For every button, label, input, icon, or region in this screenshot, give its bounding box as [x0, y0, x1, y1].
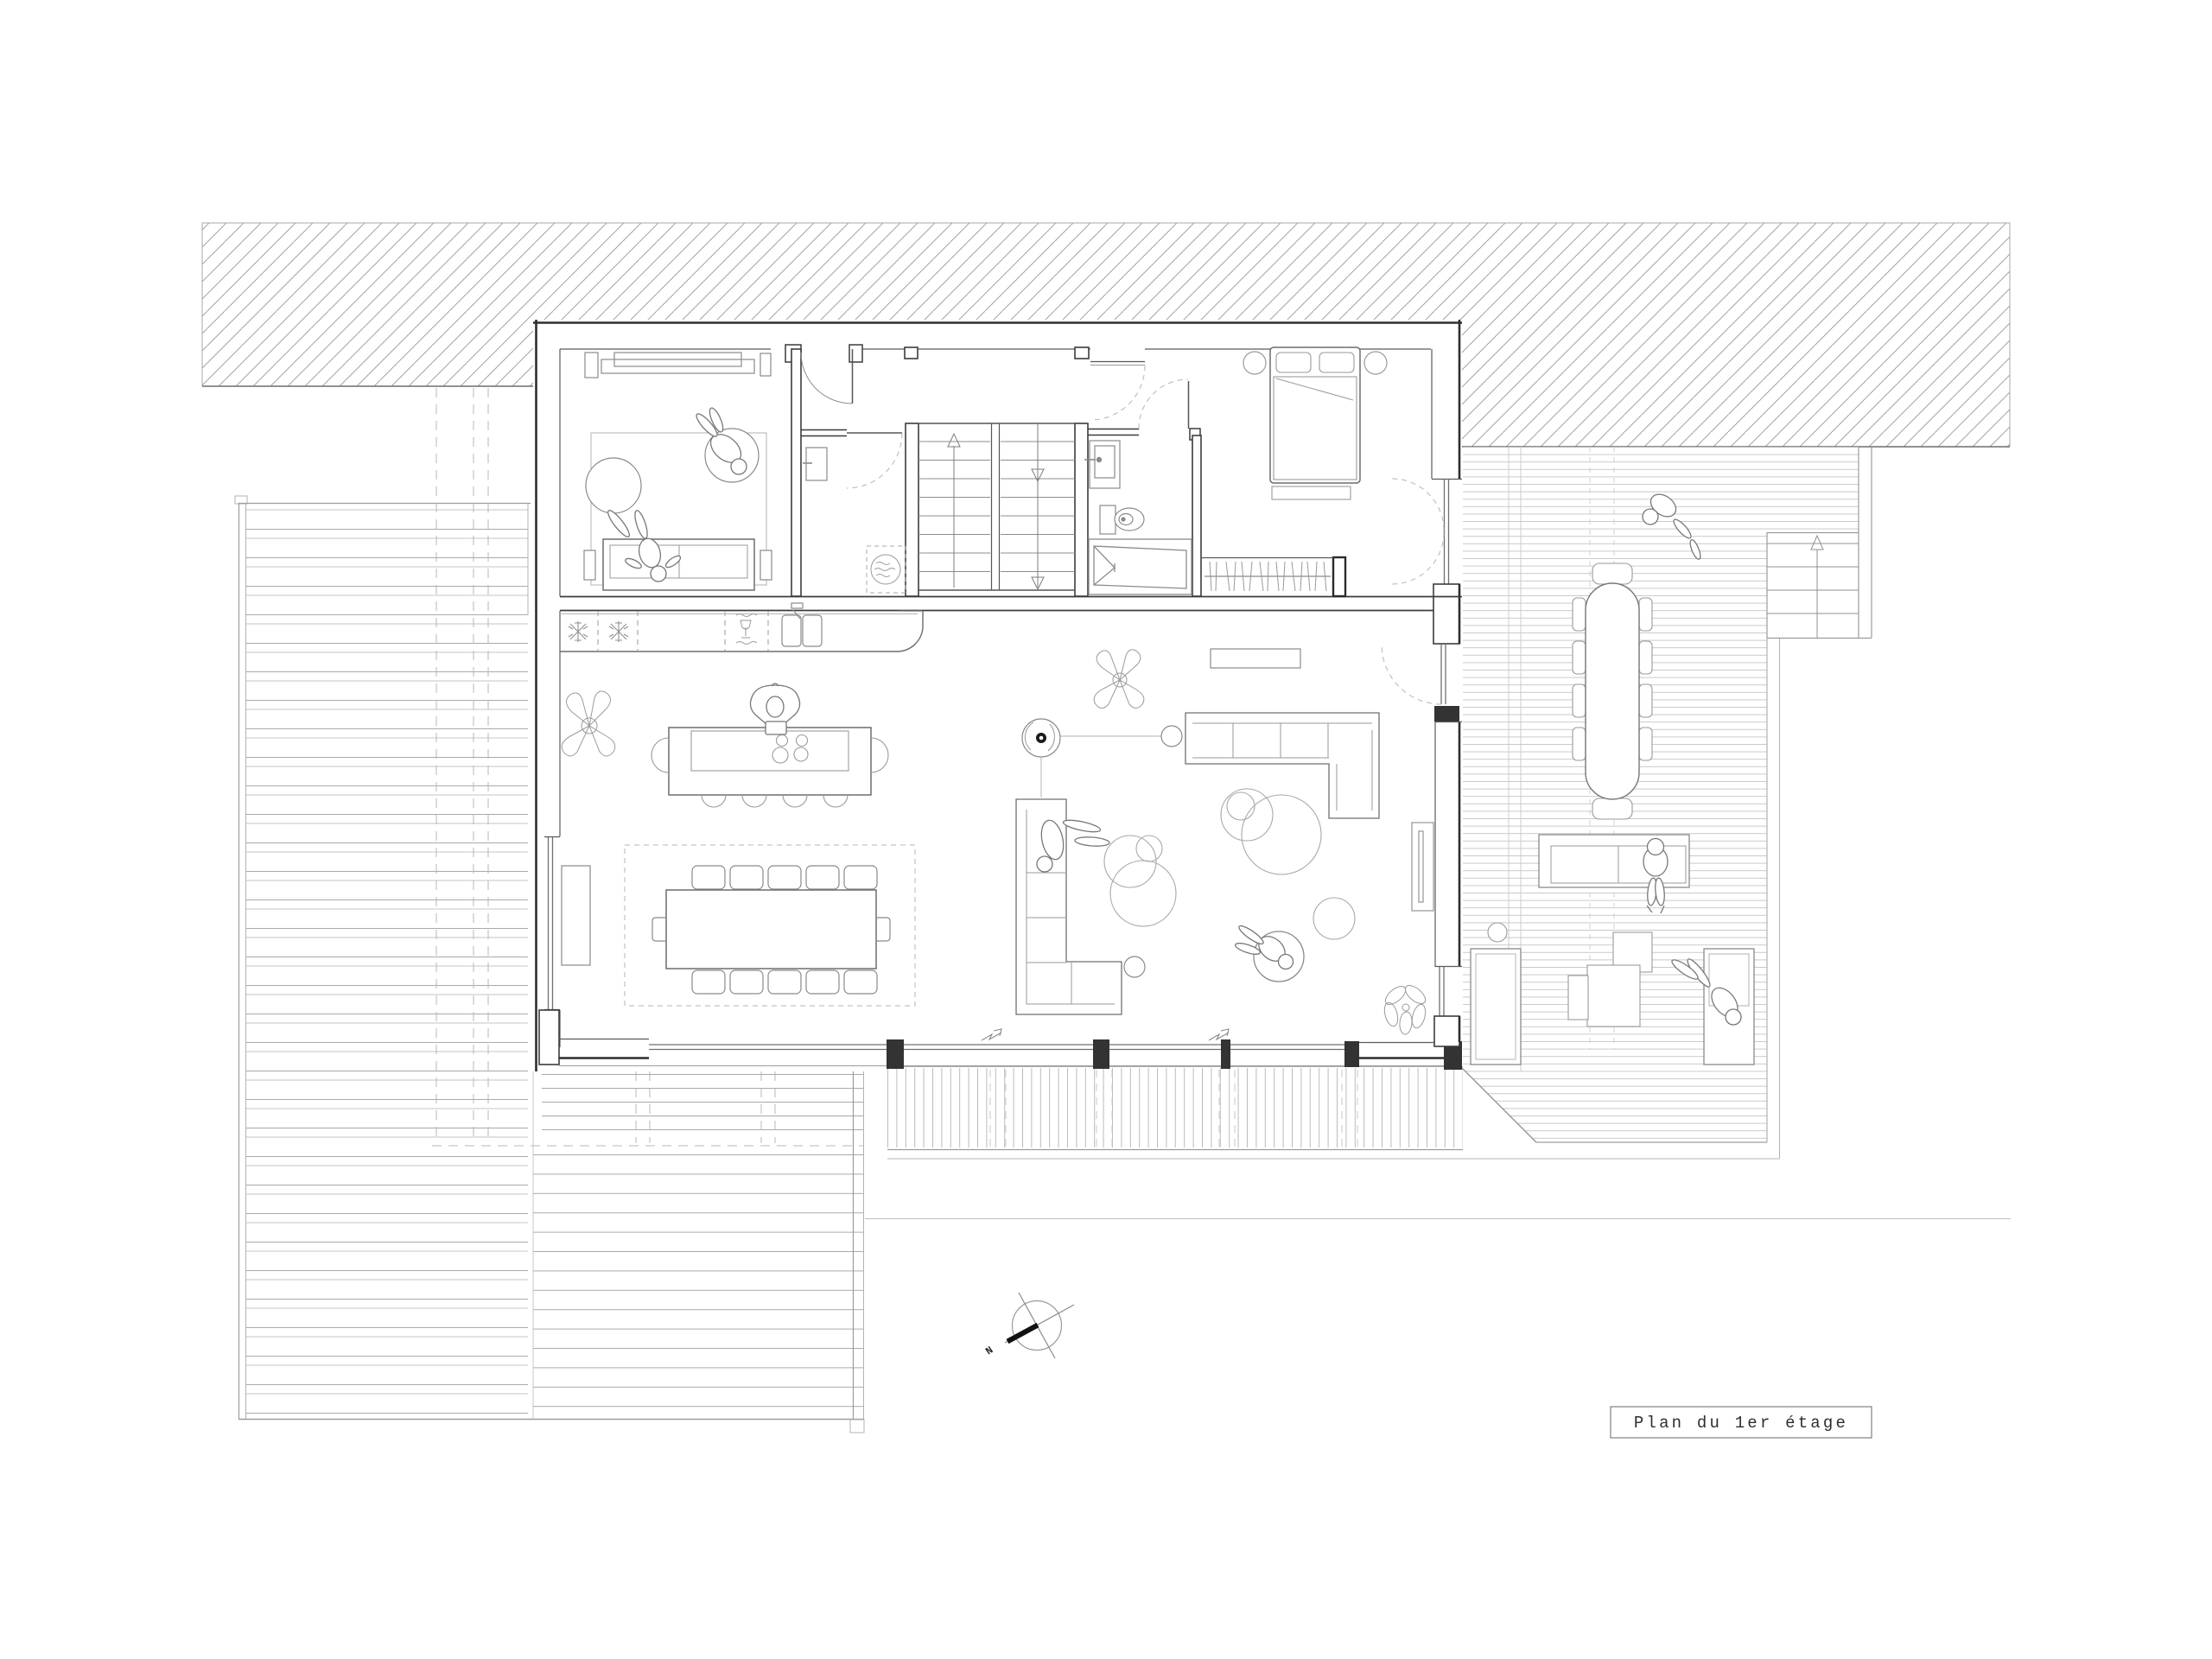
svg-text:Plan du 1er étage: Plan du 1er étage	[1634, 1414, 1848, 1433]
